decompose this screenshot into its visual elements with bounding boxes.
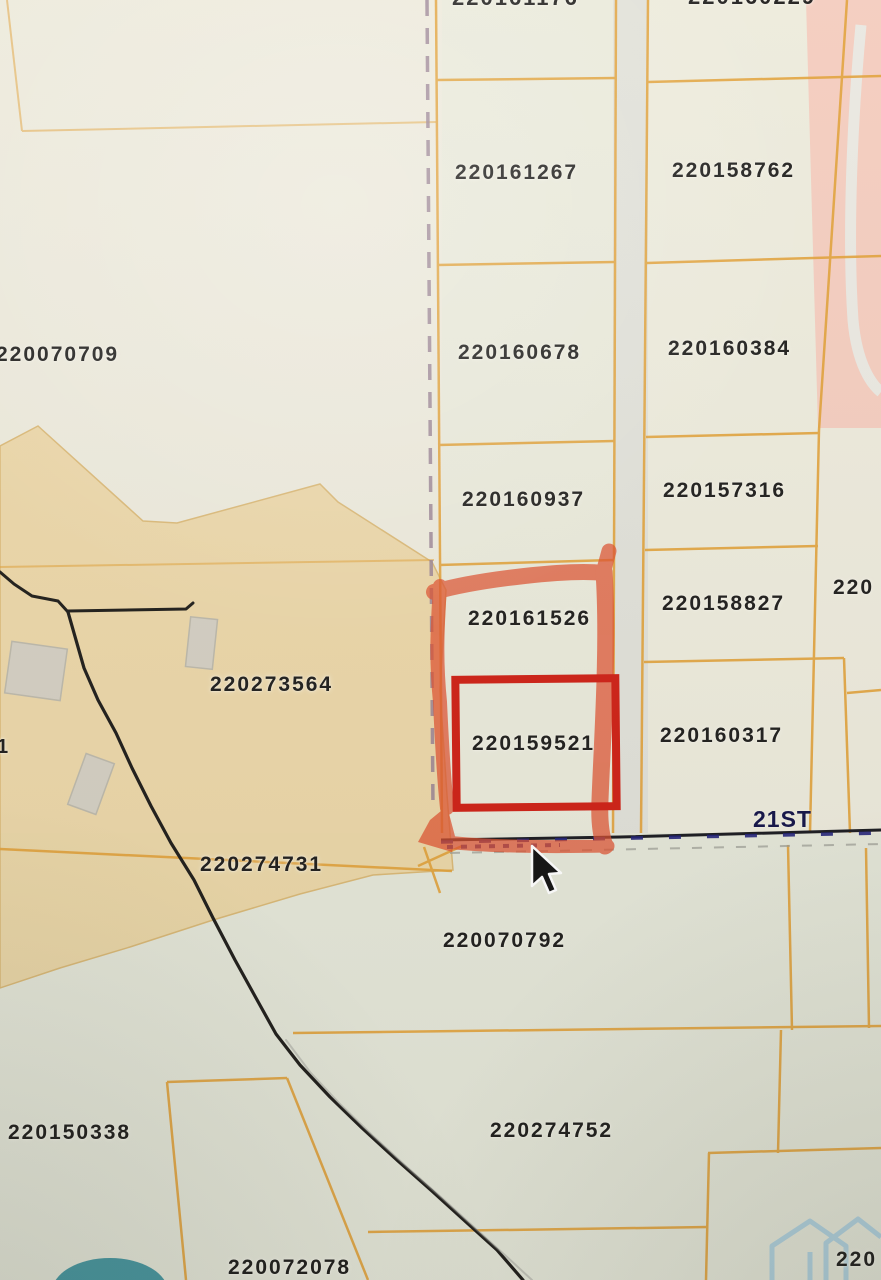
parcel-label-220-right: 220 xyxy=(833,577,874,598)
parcel-label-220150338: 220150338 xyxy=(8,1122,131,1143)
parcel-label-220274731: 220274731 xyxy=(200,854,323,875)
parcel-label-220158762: 220158762 xyxy=(672,160,795,181)
parcel-label-220161526: 220161526 xyxy=(468,608,591,629)
zone-right-parcel-column xyxy=(648,0,820,833)
parcel-label-220160317: 220160317 xyxy=(660,725,783,746)
parcel-label-220160229-cut: 220160229 xyxy=(688,0,816,8)
parcel-label-220160937: 220160937 xyxy=(462,489,585,510)
parcel-label-220-bottom: 220 xyxy=(836,1249,877,1270)
parcel-label-220158827: 220158827 xyxy=(662,593,785,614)
parcel-label-220070709: 220070709 xyxy=(0,344,119,365)
street-name-label: 21ST xyxy=(753,808,812,831)
parcel-map-screenshot: 2201611762201602292201612672201587622200… xyxy=(0,0,881,1280)
parcel-label-220160678: 220160678 xyxy=(458,342,581,363)
partial-label-1: 1 xyxy=(0,737,10,757)
parcel-label-220160384: 220160384 xyxy=(668,338,791,359)
parcel-label-220157316: 220157316 xyxy=(663,480,786,501)
parcel-label-220273564: 220273564 xyxy=(210,674,333,695)
map-canvas xyxy=(0,0,881,1280)
parcel-label-220072078: 220072078 xyxy=(228,1257,351,1278)
parcel-label-220159521: 220159521 xyxy=(472,733,595,754)
parcel-label-220070792: 220070792 xyxy=(443,930,566,951)
parcel-label-220161267: 220161267 xyxy=(455,162,578,183)
parcel-label-220274752: 220274752 xyxy=(490,1120,613,1141)
parcel-label-220161176-cut: 220161176 xyxy=(452,0,579,9)
building-footprint xyxy=(5,641,68,700)
building-footprint xyxy=(185,617,217,670)
zone-left-parcel-column xyxy=(442,0,613,833)
